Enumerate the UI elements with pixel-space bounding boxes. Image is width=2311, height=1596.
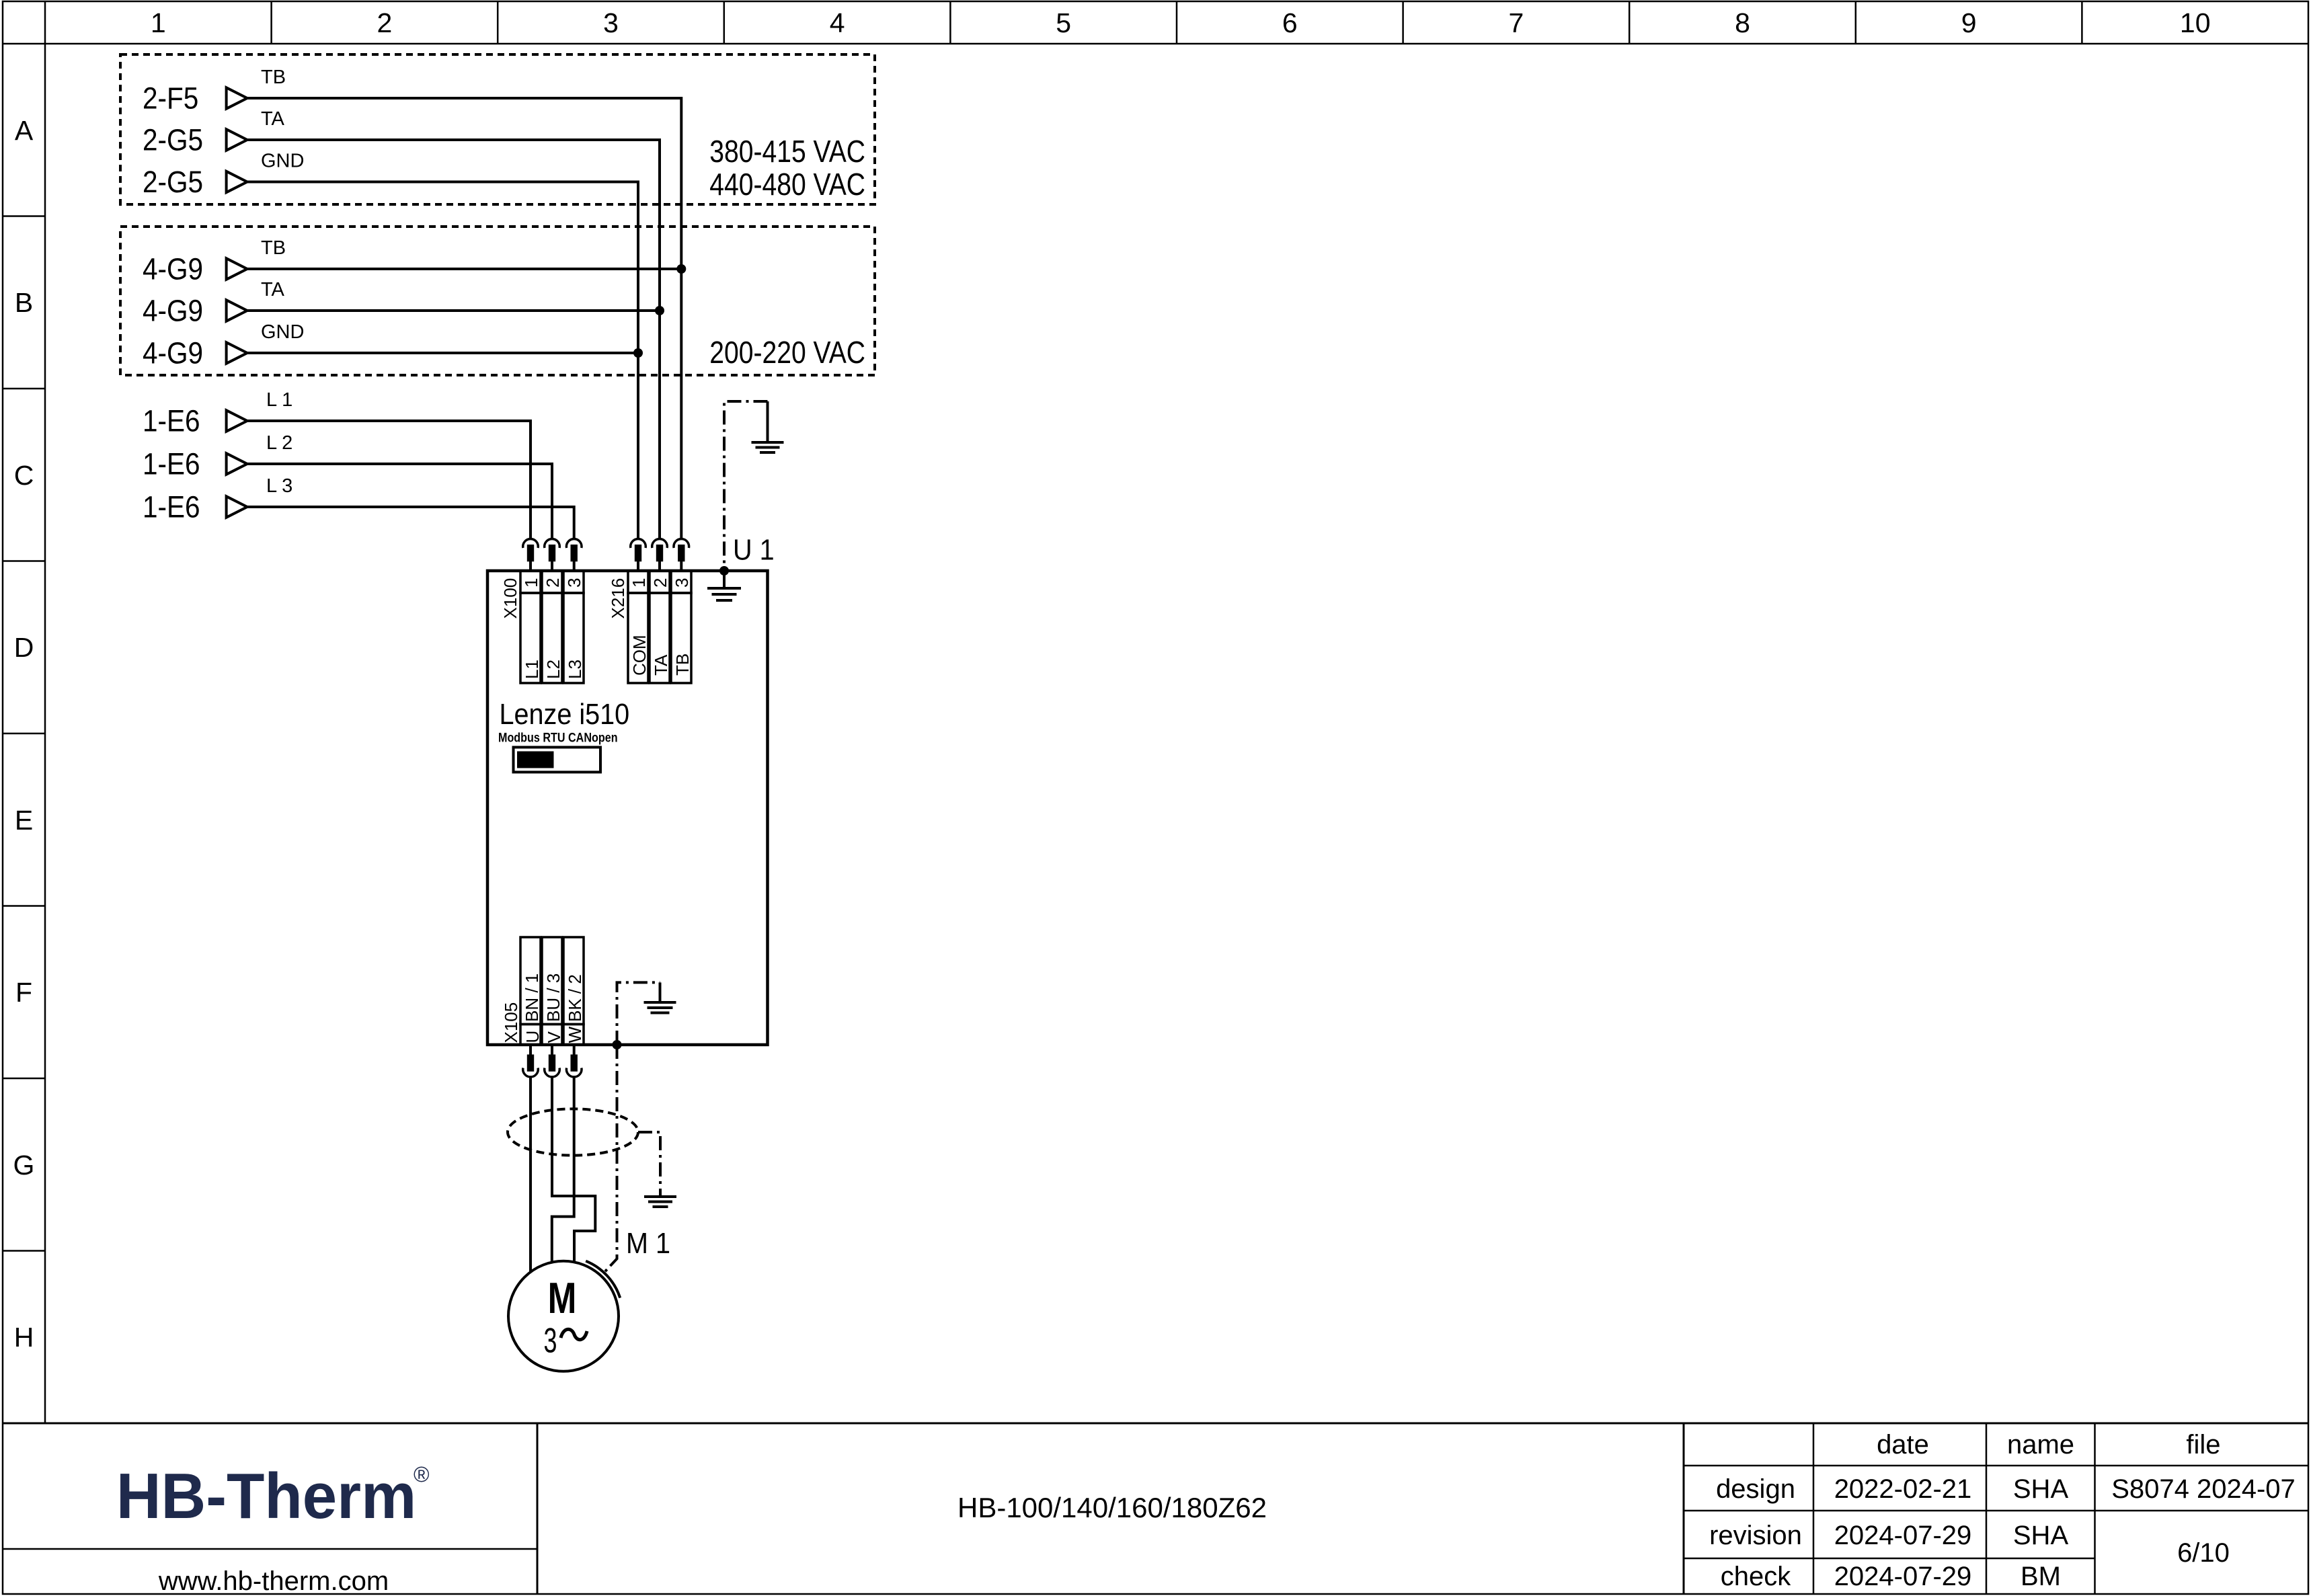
- svg-text:TB: TB: [261, 67, 286, 88]
- svg-text:SHA: SHA: [2013, 1521, 2069, 1550]
- svg-text:6/10: 6/10: [2177, 1538, 2230, 1568]
- svg-text:L1: L1: [522, 660, 542, 679]
- svg-text:B: B: [15, 287, 33, 318]
- svg-text:2-G5: 2-G5: [143, 124, 203, 157]
- svg-text:BN / 1: BN / 1: [522, 973, 542, 1022]
- svg-text:8: 8: [1735, 7, 1750, 38]
- svg-text:3: 3: [544, 1322, 557, 1360]
- svg-text:10: 10: [2180, 7, 2211, 38]
- svg-text:440-480 VAC: 440-480 VAC: [709, 167, 865, 202]
- svg-text:TA: TA: [261, 108, 285, 130]
- svg-text:www.hb-therm.com: www.hb-therm.com: [158, 1566, 389, 1596]
- svg-text:F: F: [15, 977, 32, 1008]
- svg-text:2-F5: 2-F5: [143, 82, 198, 116]
- svg-text:4: 4: [830, 7, 845, 38]
- svg-text:1-E6: 1-E6: [143, 491, 200, 524]
- svg-text:2: 2: [650, 578, 670, 588]
- svg-text:revision: revision: [1709, 1521, 1802, 1550]
- svg-text:X100: X100: [500, 578, 520, 619]
- svg-text:SHA: SHA: [2013, 1474, 2069, 1504]
- svg-text:TB: TB: [261, 237, 286, 259]
- svg-text:check: check: [1721, 1562, 1791, 1591]
- svg-text:HB-Therm: HB-Therm: [116, 1460, 416, 1531]
- svg-text:L 2: L 2: [266, 432, 292, 454]
- svg-text:Modbus RTU CANopen: Modbus RTU CANopen: [498, 730, 618, 745]
- svg-text:TA: TA: [261, 279, 285, 301]
- svg-text:name: name: [2007, 1430, 2074, 1460]
- svg-text:6: 6: [1282, 7, 1298, 38]
- svg-text:E: E: [15, 805, 33, 836]
- svg-text:3: 3: [603, 7, 619, 38]
- svg-text:GND: GND: [261, 151, 304, 172]
- svg-text:2: 2: [543, 578, 563, 588]
- svg-text:1-E6: 1-E6: [143, 405, 200, 438]
- svg-text:4-G9: 4-G9: [143, 337, 203, 370]
- svg-text:1-E6: 1-E6: [143, 448, 200, 481]
- svg-text:design: design: [1716, 1474, 1795, 1504]
- svg-text:A: A: [15, 115, 34, 146]
- svg-text:U 1: U 1: [733, 533, 775, 566]
- svg-text:G: G: [13, 1150, 35, 1181]
- svg-text:2: 2: [377, 7, 392, 38]
- svg-text:Lenze i510: Lenze i510: [500, 697, 630, 730]
- svg-text:C: C: [14, 460, 34, 491]
- svg-text:BM: BM: [2021, 1562, 2061, 1591]
- svg-text:TB: TB: [672, 653, 693, 676]
- svg-text:2024-07-29: 2024-07-29: [1834, 1521, 1972, 1550]
- svg-text:S8074 2024-07: S8074 2024-07: [2111, 1474, 2296, 1504]
- svg-text:GND: GND: [261, 321, 304, 343]
- svg-text:BK / 2: BK / 2: [565, 974, 585, 1022]
- svg-text:7: 7: [1508, 7, 1524, 38]
- svg-text:1: 1: [151, 7, 166, 38]
- svg-text:L2: L2: [543, 660, 563, 679]
- svg-text:®: ®: [414, 1462, 430, 1486]
- svg-text:date: date: [1877, 1430, 1929, 1460]
- svg-text:200-220 VAC: 200-220 VAC: [709, 335, 865, 370]
- svg-text:L 1: L 1: [266, 389, 292, 411]
- svg-text:3: 3: [672, 578, 692, 588]
- svg-text:4-G9: 4-G9: [143, 294, 203, 328]
- svg-text:TA: TA: [651, 654, 671, 676]
- svg-text:HB-100/140/160/180Z62: HB-100/140/160/180Z62: [957, 1492, 1267, 1523]
- svg-text:file: file: [2186, 1430, 2220, 1460]
- svg-text:2024-07-29: 2024-07-29: [1834, 1562, 1972, 1591]
- svg-text:4-G9: 4-G9: [143, 253, 203, 286]
- svg-text:H: H: [14, 1322, 34, 1353]
- svg-text:W: W: [565, 1027, 585, 1043]
- svg-text:V: V: [544, 1031, 564, 1043]
- svg-text:2022-02-21: 2022-02-21: [1834, 1474, 1972, 1504]
- svg-text:X105: X105: [501, 1002, 521, 1043]
- svg-text:3: 3: [564, 578, 584, 588]
- svg-text:BU / 3: BU / 3: [543, 973, 563, 1022]
- svg-text:L 3: L 3: [266, 475, 292, 497]
- svg-text:2-G5: 2-G5: [143, 165, 203, 199]
- svg-text:9: 9: [1961, 7, 1977, 38]
- svg-text:1: 1: [521, 578, 541, 588]
- svg-text:M 1: M 1: [626, 1226, 670, 1259]
- svg-text:L3: L3: [565, 660, 585, 679]
- svg-text:COM: COM: [629, 635, 650, 676]
- svg-text:D: D: [14, 632, 34, 663]
- svg-text:1: 1: [629, 578, 649, 588]
- svg-text:380-415 VAC: 380-415 VAC: [709, 134, 865, 169]
- svg-text:X216: X216: [608, 578, 628, 619]
- svg-text:M: M: [548, 1274, 577, 1322]
- svg-text:5: 5: [1056, 7, 1071, 38]
- svg-text:U: U: [522, 1031, 543, 1043]
